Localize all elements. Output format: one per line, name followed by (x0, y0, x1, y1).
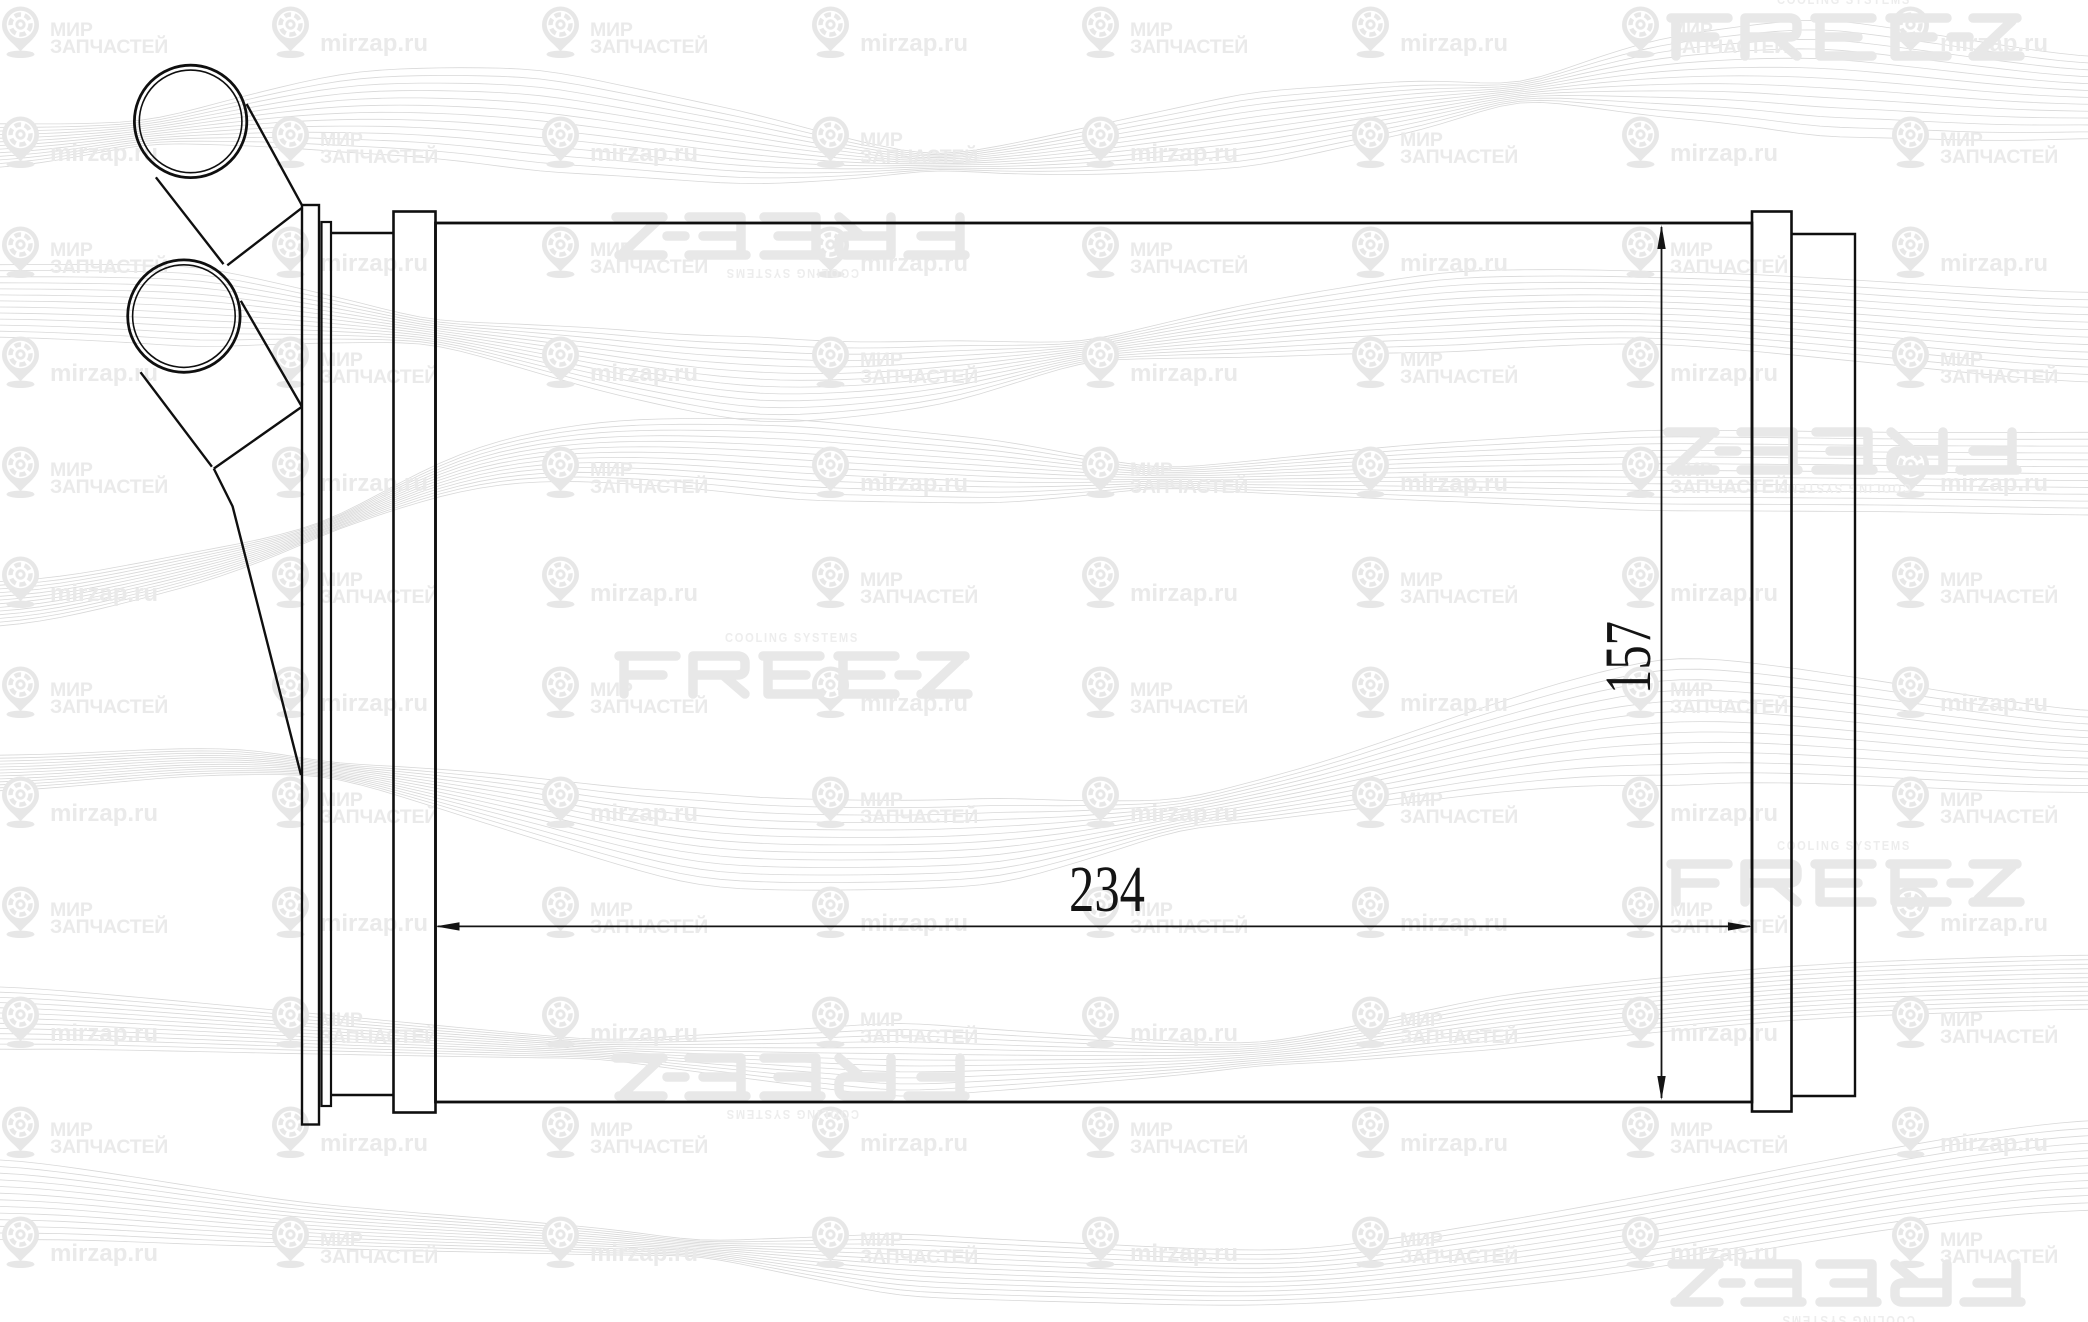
svg-text:mirzap.ru: mirzap.ru (1130, 1240, 1238, 1267)
svg-text:mirzap.ru: mirzap.ru (1130, 580, 1238, 607)
svg-text:ЗАПЧАСТЕЙ: ЗАПЧАСТЕЙ (1130, 1134, 1248, 1158)
svg-text:ЗАПЧАСТЕЙ: ЗАПЧАСТЕЙ (1400, 584, 1518, 608)
svg-text:ЗАПЧАСТЕЙ: ЗАПЧАСТЕЙ (1940, 1244, 2058, 1268)
svg-text:mirzap.ru: mirzap.ru (320, 470, 428, 497)
svg-text:ЗАПЧАСТЕЙ: ЗАПЧАСТЕЙ (50, 914, 168, 938)
svg-text:mirzap.ru: mirzap.ru (50, 140, 158, 167)
svg-text:ЗАПЧАСТЕЙ: ЗАПЧАСТЕЙ (1400, 144, 1518, 168)
svg-text:ЗАПЧАСТЕЙ: ЗАПЧАСТЕЙ (1670, 1134, 1788, 1158)
svg-text:mirzap.ru: mirzap.ru (1940, 690, 2048, 717)
svg-text:ЗАПЧАСТЕЙ: ЗАПЧАСТЕЙ (860, 1244, 978, 1268)
svg-text:157: 157 (1592, 621, 1665, 694)
svg-text:mirzap.ru: mirzap.ru (1670, 1020, 1778, 1047)
svg-text:ЗАПЧАСТЕЙ: ЗАПЧАСТЕЙ (50, 34, 168, 58)
svg-text:mirzap.ru: mirzap.ru (1130, 1020, 1238, 1047)
svg-text:ЗАПЧАСТЕЙ: ЗАПЧАСТЕЙ (320, 144, 438, 168)
svg-text:ЗАПЧАСТЕЙ: ЗАПЧАСТЕЙ (860, 364, 978, 388)
svg-text:ЗАПЧАСТЕЙ: ЗАПЧАСТЕЙ (1400, 804, 1518, 828)
svg-text:mirzap.ru: mirzap.ru (590, 1020, 698, 1047)
svg-text:mirzap.ru: mirzap.ru (1400, 250, 1508, 277)
svg-text:ЗАПЧАСТЕЙ: ЗАПЧАСТЕЙ (1130, 474, 1248, 498)
svg-text:ЗАПЧАСТЕЙ: ЗАПЧАСТЕЙ (860, 584, 978, 608)
svg-text:mirzap.ru: mirzap.ru (1670, 800, 1778, 827)
svg-text:mirzap.ru: mirzap.ru (590, 800, 698, 827)
svg-text:mirzap.ru: mirzap.ru (590, 580, 698, 607)
svg-text:ЗАПЧАСТЕЙ: ЗАПЧАСТЕЙ (320, 1024, 438, 1048)
svg-text:mirzap.ru: mirzap.ru (1940, 910, 2048, 937)
svg-text:mirzap.ru: mirzap.ru (1400, 470, 1508, 497)
svg-text:ЗАПЧАСТЕЙ: ЗАПЧАСТЕЙ (1400, 364, 1518, 388)
svg-text:ЗАПЧАСТЕЙ: ЗАПЧАСТЕЙ (1940, 144, 2058, 168)
svg-text:ЗАПЧАСТЕЙ: ЗАПЧАСТЕЙ (1670, 474, 1788, 498)
svg-text:ЗАПЧАСТЕЙ: ЗАПЧАСТЕЙ (1130, 34, 1248, 58)
svg-text:mirzap.ru: mirzap.ru (1670, 360, 1778, 387)
svg-text:ЗАПЧАСТЕЙ: ЗАПЧАСТЕЙ (1670, 694, 1788, 718)
svg-text:mirzap.ru: mirzap.ru (1940, 250, 2048, 277)
svg-text:ЗАПЧАСТЕЙ: ЗАПЧАСТЕЙ (320, 584, 438, 608)
svg-text:mirzap.ru: mirzap.ru (320, 690, 428, 717)
svg-text:ЗАПЧАСТЕЙ: ЗАПЧАСТЕЙ (1940, 804, 2058, 828)
svg-text:mirzap.ru: mirzap.ru (320, 910, 428, 937)
svg-text:ЗАПЧАСТЕЙ: ЗАПЧАСТЕЙ (1400, 1024, 1518, 1048)
svg-text:ЗАПЧАСТЕЙ: ЗАПЧАСТЕЙ (1670, 254, 1788, 278)
svg-text:mirzap.ru: mirzap.ru (50, 1020, 158, 1047)
svg-text:ЗАПЧАСТЕЙ: ЗАПЧАСТЕЙ (860, 804, 978, 828)
svg-text:mirzap.ru: mirzap.ru (1670, 140, 1778, 167)
svg-text:mirzap.ru: mirzap.ru (50, 800, 158, 827)
svg-text:mirzap.ru: mirzap.ru (1400, 30, 1508, 57)
svg-text:mirzap.ru: mirzap.ru (50, 580, 158, 607)
svg-text:ЗАПЧАСТЕЙ: ЗАПЧАСТЕЙ (1130, 254, 1248, 278)
svg-text:mirzap.ru: mirzap.ru (1670, 580, 1778, 607)
svg-text:mirzap.ru: mirzap.ru (590, 360, 698, 387)
svg-text:mirzap.ru: mirzap.ru (1130, 360, 1238, 387)
svg-text:ЗАПЧАСТЕЙ: ЗАПЧАСТЕЙ (50, 254, 168, 278)
svg-text:mirzap.ru: mirzap.ru (1400, 1130, 1508, 1157)
svg-text:ЗАПЧАСТЕЙ: ЗАПЧАСТЕЙ (590, 474, 708, 498)
svg-text:ЗАПЧАСТЕЙ: ЗАПЧАСТЕЙ (1940, 364, 2058, 388)
svg-text:mirzap.ru: mirzap.ru (320, 250, 428, 277)
svg-text:mirzap.ru: mirzap.ru (860, 1130, 968, 1157)
svg-text:mirzap.ru: mirzap.ru (1130, 140, 1238, 167)
svg-text:ЗАПЧАСТЕЙ: ЗАПЧАСТЕЙ (320, 804, 438, 828)
svg-text:234: 234 (1069, 853, 1145, 926)
svg-text:ЗАПЧАСТЕЙ: ЗАПЧАСТЕЙ (50, 1134, 168, 1158)
svg-text:ЗАПЧАСТЕЙ: ЗАПЧАСТЕЙ (1130, 694, 1248, 718)
svg-text:mirzap.ru: mirzap.ru (590, 140, 698, 167)
svg-text:mirzap.ru: mirzap.ru (860, 30, 968, 57)
svg-text:mirzap.ru: mirzap.ru (1400, 910, 1508, 937)
svg-text:ЗАПЧАСТЕЙ: ЗАПЧАСТЕЙ (590, 34, 708, 58)
svg-text:mirzap.ru: mirzap.ru (1130, 800, 1238, 827)
svg-text:mirzap.ru: mirzap.ru (860, 470, 968, 497)
svg-text:ЗАПЧАСТЕЙ: ЗАПЧАСТЕЙ (50, 474, 168, 498)
svg-text:mirzap.ru: mirzap.ru (1940, 1130, 2048, 1157)
svg-text:ЗАПЧАСТЕЙ: ЗАПЧАСТЕЙ (1400, 1244, 1518, 1268)
svg-text:ЗАПЧАСТЕЙ: ЗАПЧАСТЕЙ (1940, 1024, 2058, 1048)
svg-text:mirzap.ru: mirzap.ru (590, 1240, 698, 1267)
svg-text:ЗАПЧАСТЕЙ: ЗАПЧАСТЕЙ (1940, 584, 2058, 608)
svg-text:mirzap.ru: mirzap.ru (320, 30, 428, 57)
svg-text:mirzap.ru: mirzap.ru (1400, 690, 1508, 717)
svg-text:mirzap.ru: mirzap.ru (50, 1240, 158, 1267)
svg-text:mirzap.ru: mirzap.ru (860, 910, 968, 937)
svg-text:mirzap.ru: mirzap.ru (320, 1130, 428, 1157)
svg-text:ЗАПЧАСТЕЙ: ЗАПЧАСТЕЙ (320, 364, 438, 388)
svg-text:ЗАПЧАСТЕЙ: ЗАПЧАСТЕЙ (860, 1024, 978, 1048)
svg-text:ЗАПЧАСТЕЙ: ЗАПЧАСТЕЙ (590, 1134, 708, 1158)
svg-text:ЗАПЧАСТЕЙ: ЗАПЧАСТЕЙ (860, 144, 978, 168)
svg-text:ЗАПЧАСТЕЙ: ЗАПЧАСТЕЙ (320, 1244, 438, 1268)
svg-text:ЗАПЧАСТЕЙ: ЗАПЧАСТЕЙ (50, 694, 168, 718)
